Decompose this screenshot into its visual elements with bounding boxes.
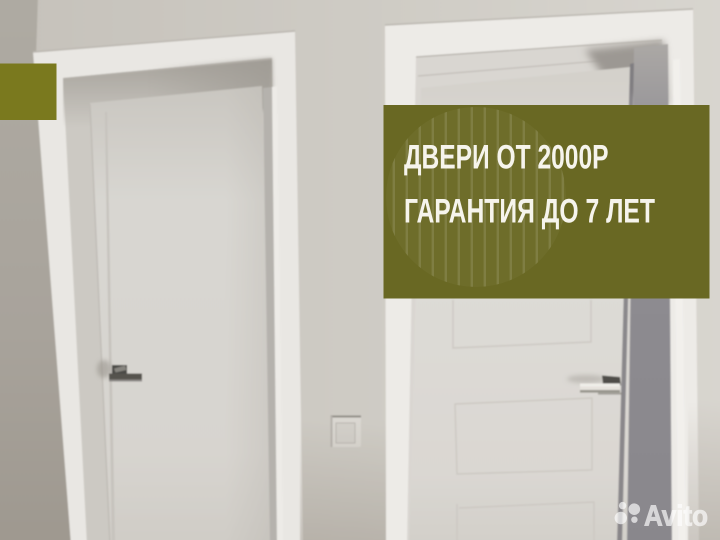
svg-text:Avito: Avito — [644, 501, 708, 533]
svg-text:ДВЕРИ ОТ 2000Р: ДВЕРИ ОТ 2000Р — [404, 139, 609, 177]
svg-text:ГАРАНТИЯ ДО 7 ЛЕТ: ГАРАНТИЯ ДО 7 ЛЕТ — [404, 192, 655, 230]
